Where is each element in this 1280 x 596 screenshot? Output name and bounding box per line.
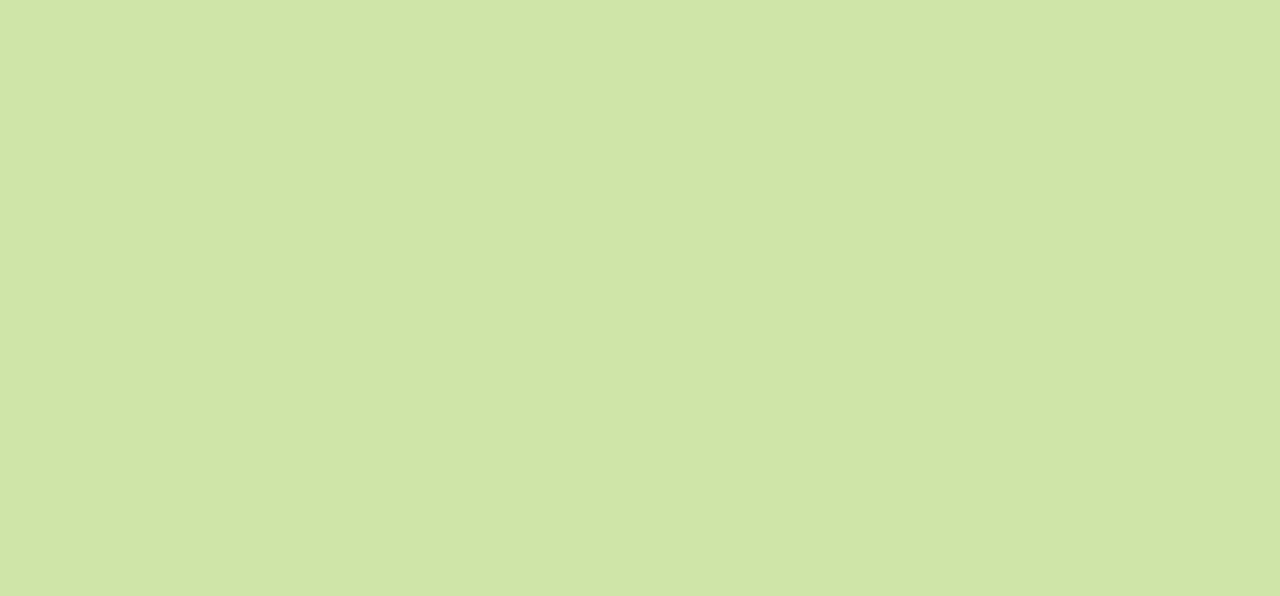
rendering-canvas [0,0,1280,596]
aerial-development-rendering [0,0,1280,596]
grass-base [0,0,1280,596]
